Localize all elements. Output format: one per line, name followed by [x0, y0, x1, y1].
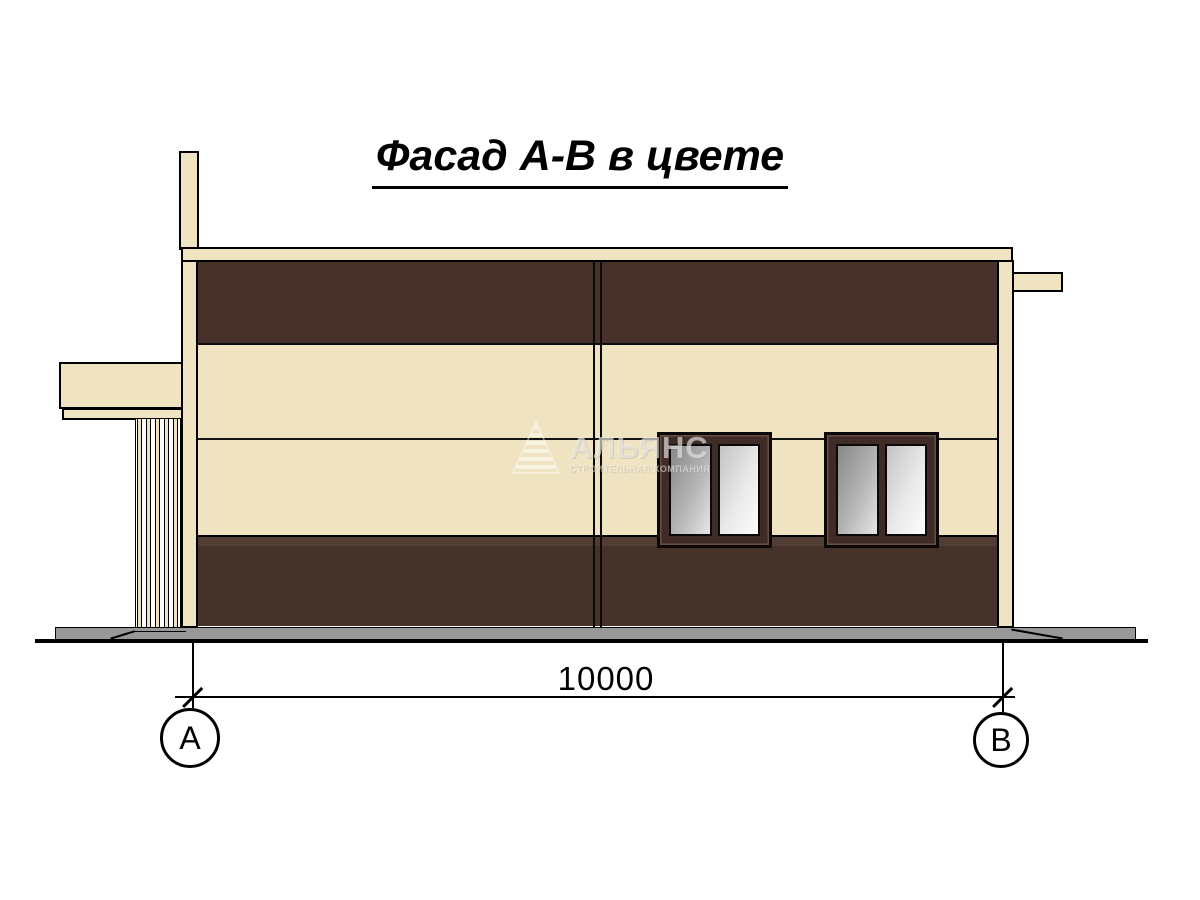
porch-floor-edge-line	[133, 631, 186, 633]
wall-band-cream-upper	[197, 345, 997, 440]
window-right	[824, 432, 939, 548]
porch-slat	[146, 419, 151, 628]
ground-line	[35, 639, 1148, 643]
projecting-beam-right	[1012, 272, 1063, 292]
window-pane	[836, 444, 879, 536]
window-pane	[718, 444, 761, 536]
porch-slat	[155, 419, 160, 628]
wall-panel-joint-line-right	[600, 261, 602, 628]
porch-slat	[173, 419, 178, 628]
axis-marker-a-label: А	[179, 720, 200, 757]
chimney	[179, 151, 199, 250]
axis-marker-b-label: В	[990, 722, 1011, 759]
drawing-title: Фасад А-В в цвете	[340, 132, 820, 189]
window-left	[657, 432, 772, 548]
window-pane	[669, 444, 712, 536]
dimension-value: 10000	[506, 660, 706, 698]
corner-trim-left	[181, 260, 198, 628]
porch-slat	[164, 419, 169, 628]
facade-drawing-canvas: Фасад А-В в цвете	[0, 0, 1200, 900]
porch-slat	[137, 419, 142, 628]
window-pane	[885, 444, 928, 536]
roof-fascia	[181, 247, 1013, 262]
drawing-title-text: Фасад А-В в цвете	[372, 132, 788, 189]
wall-panel-joint-line-left	[593, 261, 595, 628]
wall-band-plinth	[197, 537, 997, 626]
corner-trim-right	[997, 260, 1014, 628]
axis-marker-b: В	[973, 712, 1029, 768]
axis-marker-a: А	[160, 708, 220, 768]
porch-canopy	[59, 362, 183, 409]
porch-slats	[135, 419, 182, 628]
axis-extension-line-b	[1002, 642, 1004, 712]
window-glazing	[836, 444, 927, 536]
window-glazing	[669, 444, 760, 536]
wall-band-brown-upper	[197, 261, 997, 345]
